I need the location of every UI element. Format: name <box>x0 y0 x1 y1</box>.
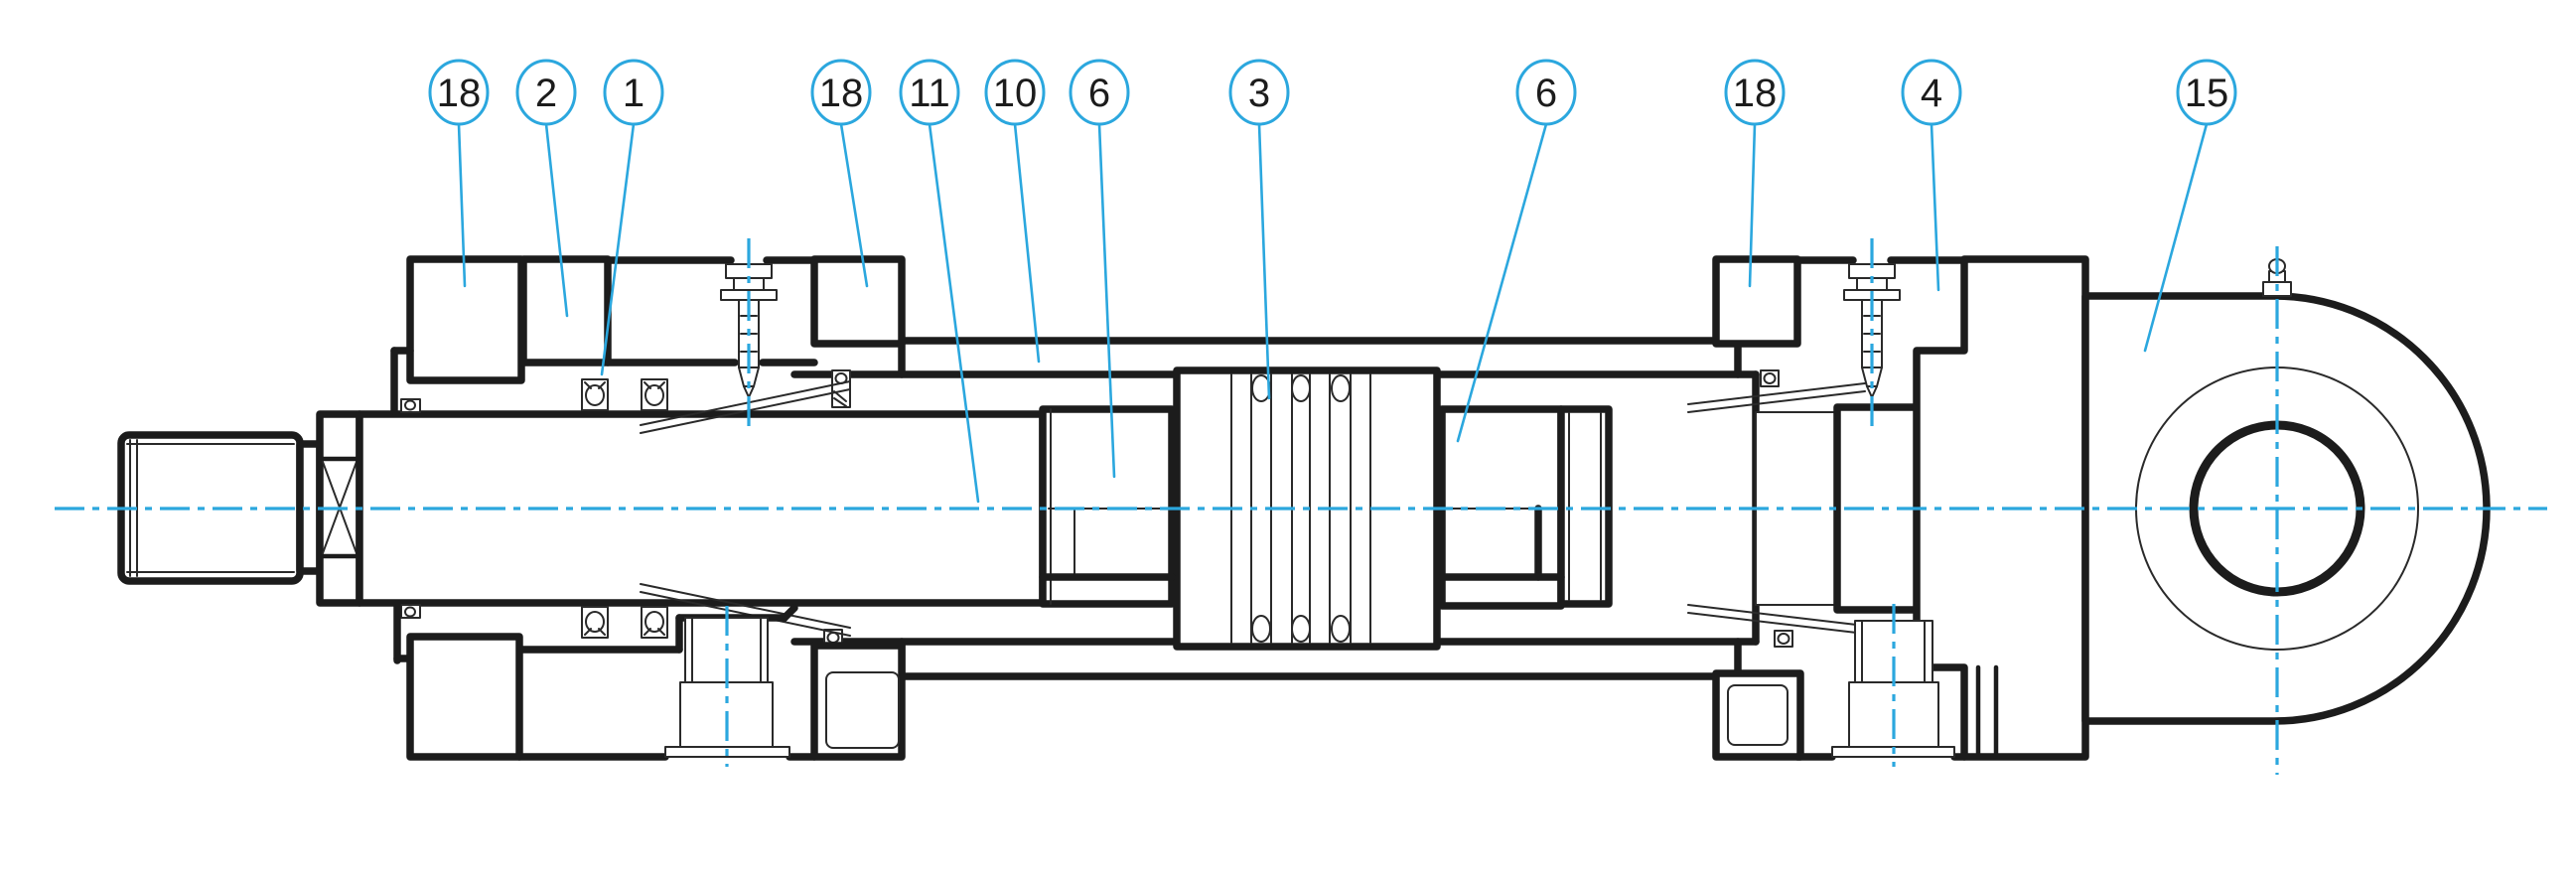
head-flange-block-bottom <box>410 637 519 757</box>
rod-wiper-seal <box>401 605 420 618</box>
cap-flange-block-bottom <box>1716 673 1800 757</box>
drawing-canvas: 182118111063618415 <box>0 0 2576 878</box>
static-seal <box>832 370 850 407</box>
rod-eye <box>2085 259 2487 721</box>
callout-number: 10 <box>993 72 1038 115</box>
rod-wiper-seal <box>401 399 420 412</box>
callout-number: 18 <box>437 72 482 115</box>
leader-line <box>602 124 634 374</box>
cushion-sleeve-front <box>1043 409 1172 604</box>
callout-10: 10 <box>986 61 1044 362</box>
cap-flange-block <box>1716 259 1797 344</box>
head-tube-flange-block <box>814 259 902 344</box>
callout-number: 4 <box>1921 72 1942 115</box>
callout-number: 11 <box>909 72 950 115</box>
callout-number: 1 <box>623 72 644 115</box>
leader-line <box>1932 124 1938 290</box>
callout-3: 3 <box>1230 61 1288 398</box>
callout-number: 18 <box>1733 72 1778 115</box>
rod-seal-cartridge <box>642 607 667 638</box>
static-seal <box>1775 631 1792 647</box>
callout-6: 6 <box>1458 61 1575 441</box>
callout-4: 4 <box>1903 61 1960 290</box>
rod-seal-cartridge <box>582 379 608 410</box>
rod-seal-cartridge <box>642 379 667 410</box>
callout-18: 18 <box>812 61 870 286</box>
callout-number: 6 <box>1535 72 1557 115</box>
callout-18: 18 <box>1726 61 1784 286</box>
callout-number: 6 <box>1088 72 1110 115</box>
head-tube-flange-block-bottom <box>814 646 902 757</box>
leader-line <box>1015 124 1039 362</box>
callout-number: 3 <box>1248 72 1270 115</box>
static-seal <box>1761 370 1779 386</box>
callout-number: 2 <box>535 72 557 115</box>
head-flange-block <box>410 259 521 380</box>
callout-number: 15 <box>2185 72 2229 115</box>
cylinder-section-drawing: 182118111063618415 <box>0 0 2576 878</box>
rod-seal-cartridge <box>582 607 608 638</box>
callout-18: 18 <box>430 61 488 286</box>
leader-line <box>1259 124 1269 398</box>
callout-number: 18 <box>819 72 864 115</box>
leader-line <box>1458 124 1546 441</box>
